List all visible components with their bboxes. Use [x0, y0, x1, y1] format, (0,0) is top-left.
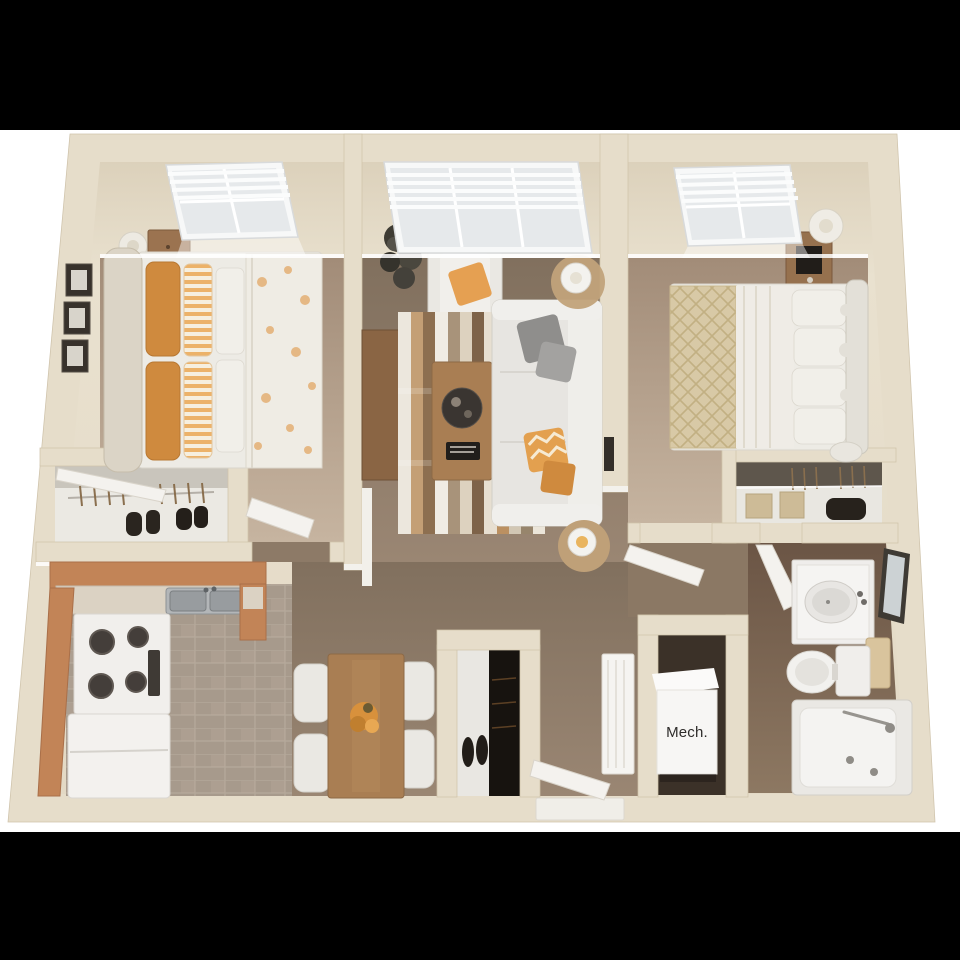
white-pillow	[792, 368, 846, 406]
bedroom-left-doorway-floor	[252, 542, 330, 562]
storage-box	[780, 492, 804, 518]
window-bedroom-left	[166, 162, 306, 258]
refrigerator	[68, 714, 170, 798]
window-bedroom-right	[674, 165, 810, 258]
bathtub	[792, 700, 912, 795]
orange-pillow	[540, 460, 576, 496]
striped-pillow	[184, 362, 212, 458]
letterbox-top	[0, 0, 960, 130]
white-pillow	[794, 328, 846, 366]
dining-chair	[294, 664, 330, 722]
coffee-table	[432, 362, 492, 480]
entry-closet	[457, 650, 520, 796]
picture-frames	[62, 264, 92, 372]
wall-art	[604, 437, 614, 471]
striped-pillow	[184, 264, 212, 356]
tan-blanket	[670, 286, 736, 448]
windows	[100, 162, 868, 258]
blanket-roll	[830, 442, 862, 462]
letterbox-bottom	[0, 832, 960, 960]
white-pillow	[794, 408, 846, 444]
wall-bedroom-left-living	[344, 134, 362, 570]
stove	[74, 614, 170, 714]
side-table-lamp-bottom	[558, 520, 610, 572]
gray-pillow	[535, 341, 578, 384]
entry-threshold	[536, 798, 624, 820]
book	[446, 442, 480, 460]
sofa	[492, 300, 602, 526]
orange-pillow	[146, 262, 180, 356]
vanity-sink	[792, 560, 874, 644]
mech-label: Mech.	[666, 724, 708, 741]
kitchen-cabinet-north	[50, 562, 266, 588]
shoe	[476, 735, 488, 765]
kitchen-sink	[166, 587, 246, 615]
side-table-lamp-top	[551, 255, 605, 309]
storage-box	[746, 494, 772, 518]
floral-duvet	[246, 254, 322, 468]
door-casing	[362, 488, 372, 586]
bed	[670, 280, 868, 462]
shower-head	[885, 723, 895, 733]
shoe	[462, 737, 474, 767]
floorplan-image: Mech.	[0, 0, 960, 960]
bedroom-right-closet	[736, 462, 882, 523]
window-living	[384, 162, 600, 258]
table-lamp	[809, 209, 843, 243]
dining-chair	[294, 734, 330, 792]
floorplan-render: Mech.	[0, 0, 960, 960]
mech-closet: Mech.	[652, 668, 719, 782]
orange-pillow	[146, 362, 180, 460]
bedroom-left-closet	[55, 466, 228, 542]
white-pillow	[216, 360, 244, 452]
living-room	[362, 224, 610, 572]
closet-shoes	[826, 498, 866, 520]
headboard	[104, 248, 142, 472]
bed	[104, 248, 322, 472]
white-pillow	[792, 290, 846, 326]
white-pillow	[216, 268, 244, 354]
decor-tray	[442, 388, 482, 428]
paneled-door	[602, 654, 634, 774]
